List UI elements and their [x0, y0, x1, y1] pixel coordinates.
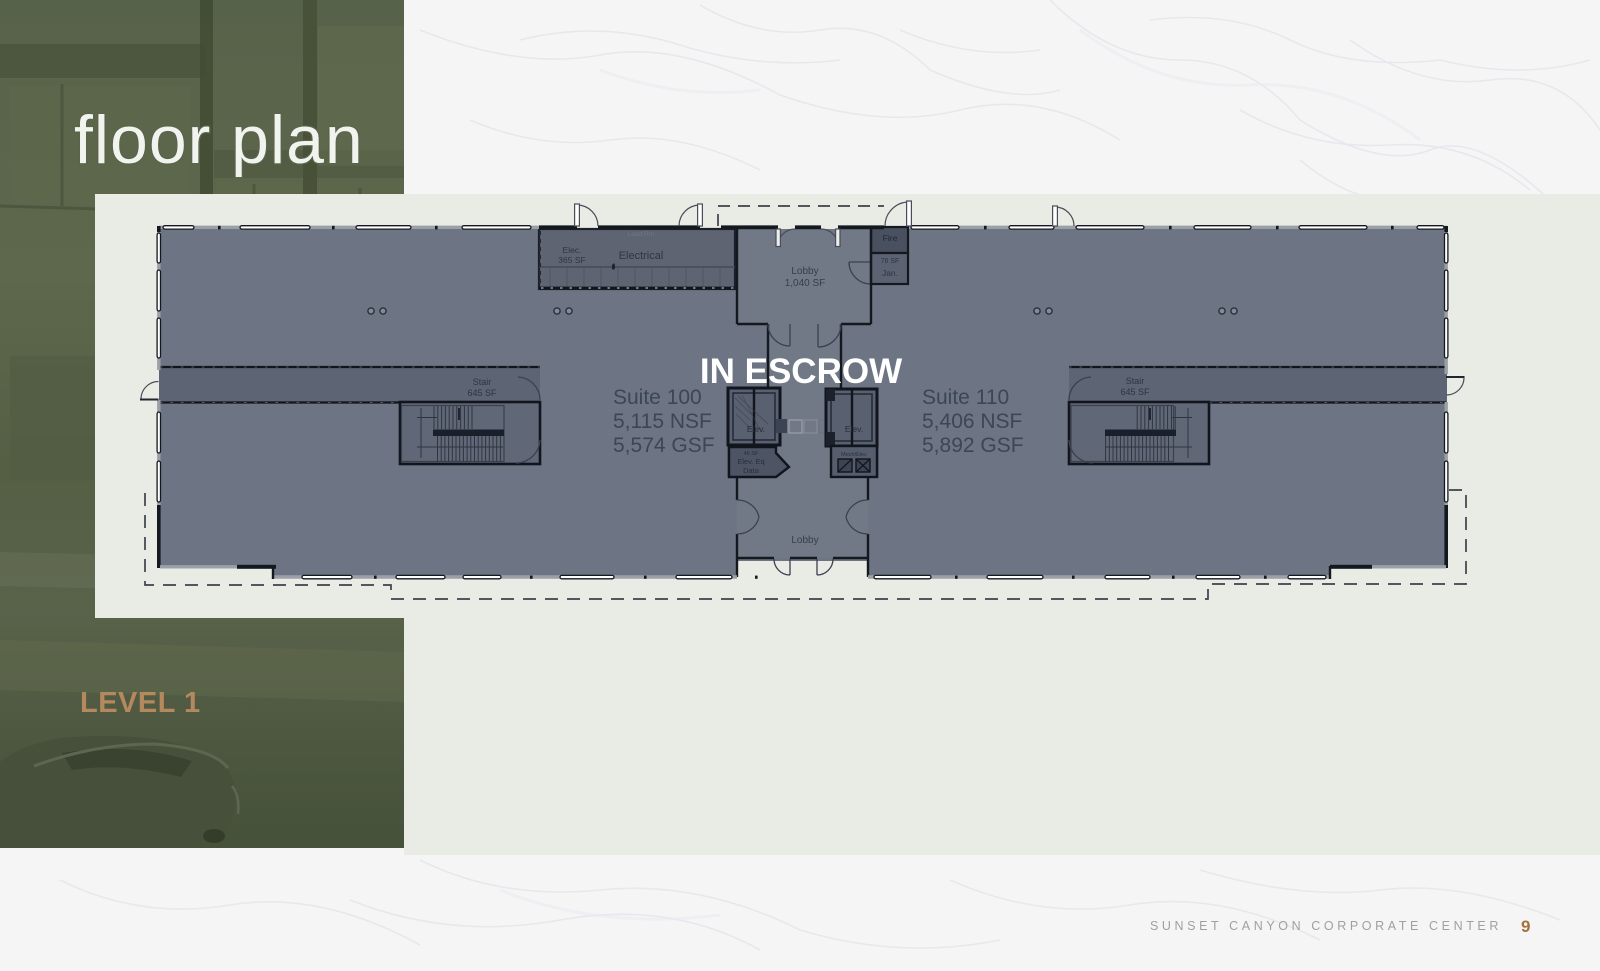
- svg-text:76 SF: 76 SF: [881, 258, 900, 265]
- svg-text:Fire: Fire: [883, 233, 898, 243]
- svg-text:1,040 SF: 1,040 SF: [785, 278, 826, 289]
- svg-text:Elev.: Elev.: [747, 424, 765, 434]
- svg-text:Mech/Elec: Mech/Elec: [841, 452, 867, 458]
- svg-text:Data: Data: [743, 466, 760, 475]
- svg-text:Elev.: Elev.: [845, 424, 863, 434]
- svg-text:46 SF: 46 SF: [744, 451, 759, 457]
- svg-text:Jan.: Jan.: [882, 268, 898, 278]
- svg-text:Load Rm: Load Rm: [628, 231, 654, 238]
- svg-text:Lobby: Lobby: [791, 266, 818, 277]
- svg-text:365 SF: 365 SF: [558, 255, 585, 265]
- svg-text:Electrical: Electrical: [619, 250, 664, 262]
- svg-text:Stair: Stair: [1126, 376, 1145, 386]
- svg-text:Elec.: Elec.: [563, 245, 582, 255]
- svg-text:Stair: Stair: [473, 377, 492, 387]
- svg-text:Lobby: Lobby: [791, 535, 818, 546]
- svg-text:645 SF: 645 SF: [1120, 387, 1150, 397]
- svg-text:Elev. Eq: Elev. Eq: [737, 457, 764, 466]
- svg-text:645 SF: 645 SF: [467, 388, 497, 398]
